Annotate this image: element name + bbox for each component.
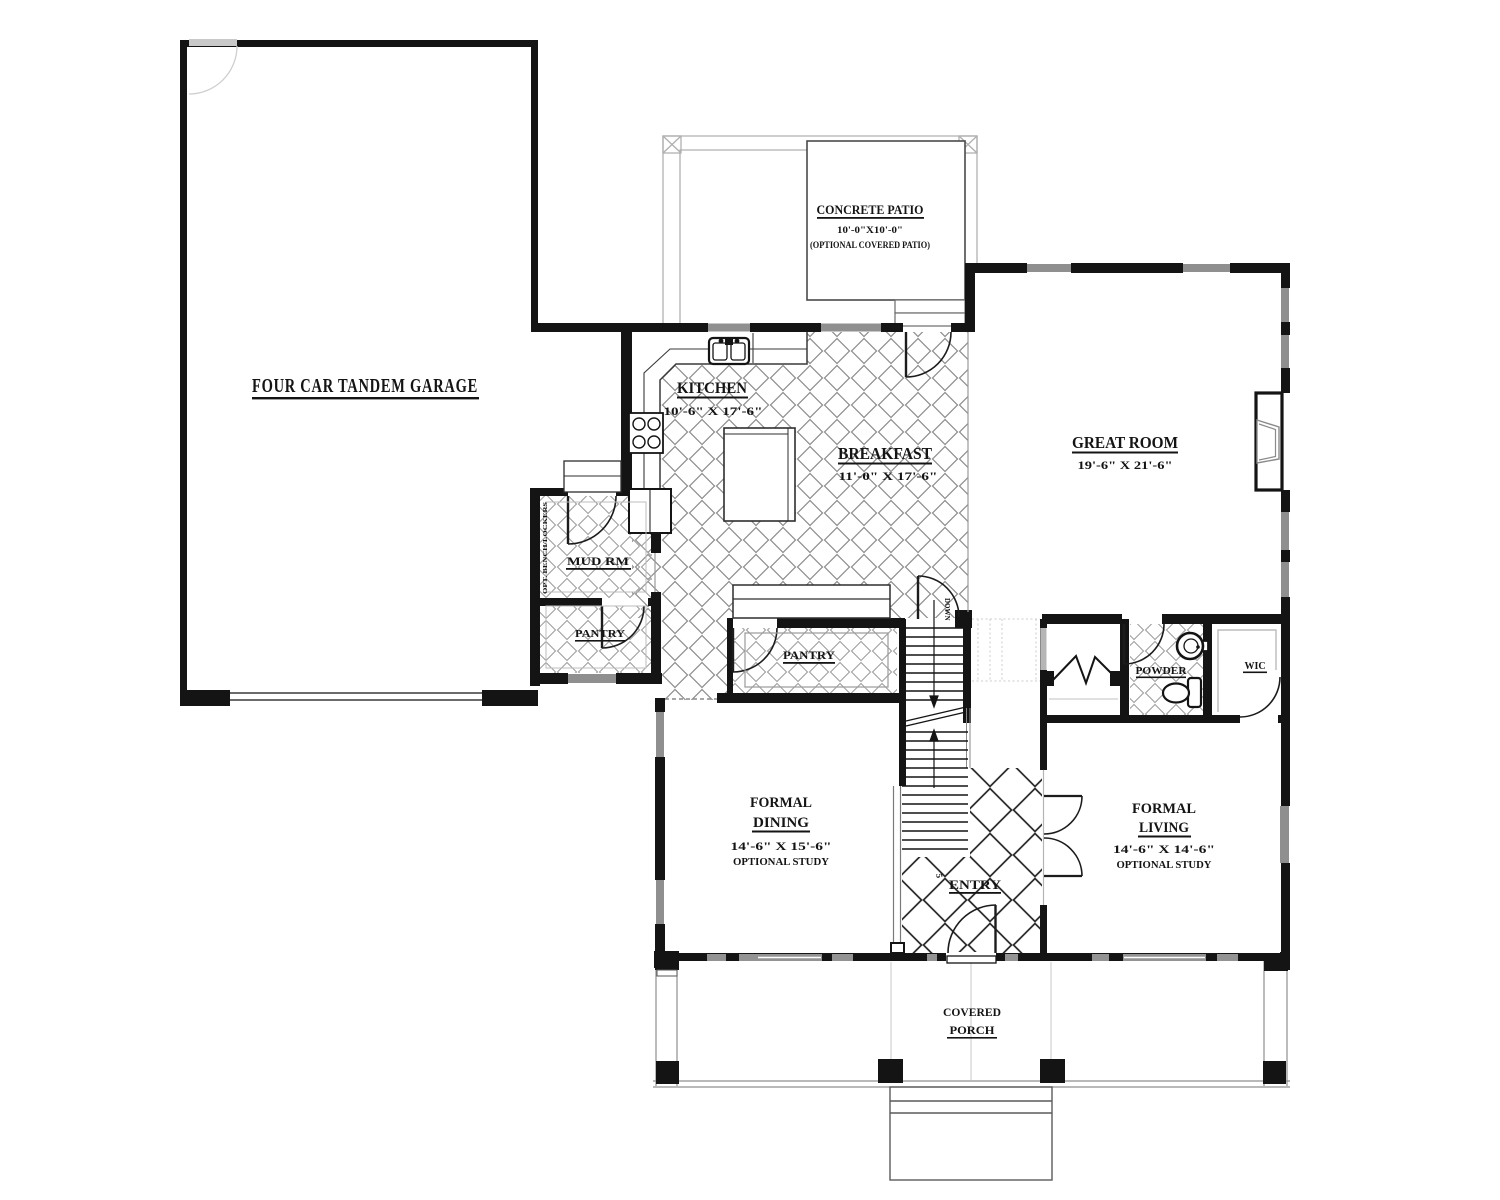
svg-text:PORCH: PORCH (950, 1025, 995, 1037)
svg-text:14'-6" X 14'-6": 14'-6" X 14'-6" (1113, 844, 1215, 856)
svg-text:PANTRY: PANTRY (783, 648, 835, 662)
svg-text:OPTIONAL STUDY: OPTIONAL STUDY (1117, 859, 1212, 871)
svg-text:DINING: DINING (753, 815, 809, 831)
svg-text:DOWN: DOWN (943, 598, 951, 621)
svg-text:GREAT ROOM: GREAT ROOM (1072, 433, 1178, 452)
svg-text:10'-6" X 17'-6": 10'-6" X 17'-6" (664, 406, 763, 418)
svg-text:OPT. BENCH/LOCKERS: OPT. BENCH/LOCKERS (542, 501, 549, 594)
svg-text:19'-6" X 21'-6": 19'-6" X 21'-6" (1078, 460, 1173, 472)
svg-text:KITCHEN: KITCHEN (677, 380, 747, 397)
svg-text:BREAKFAST: BREAKFAST (838, 444, 932, 463)
svg-text:11'-0" X 17'-6": 11'-0" X 17'-6" (839, 471, 938, 483)
svg-text:FOUR CAR TANDEM GARAGE: FOUR CAR TANDEM GARAGE (252, 375, 478, 397)
svg-text:10'-0"X10'-0": 10'-0"X10'-0" (837, 225, 903, 235)
svg-text:FORMAL: FORMAL (1132, 801, 1196, 817)
svg-text:MUD RM: MUD RM (567, 554, 629, 568)
svg-text:COVERED: COVERED (943, 1007, 1001, 1019)
svg-text:LIVING: LIVING (1139, 820, 1189, 836)
svg-text:ENTRY: ENTRY (949, 877, 1002, 892)
svg-text:14'-6" X 15'-6": 14'-6" X 15'-6" (731, 841, 832, 853)
svg-text:FORMAL: FORMAL (750, 795, 812, 811)
svg-text:OPTIONAL STUDY: OPTIONAL STUDY (733, 856, 829, 868)
svg-text:(OPTIONAL COVERED PATIO): (OPTIONAL COVERED PATIO) (810, 240, 930, 250)
svg-text:CONCRETE PATIO: CONCRETE PATIO (817, 203, 924, 217)
svg-text:PANTRY: PANTRY (575, 629, 625, 640)
svg-text:WIC: WIC (1244, 661, 1265, 672)
svg-text:POWDER: POWDER (1136, 665, 1188, 677)
